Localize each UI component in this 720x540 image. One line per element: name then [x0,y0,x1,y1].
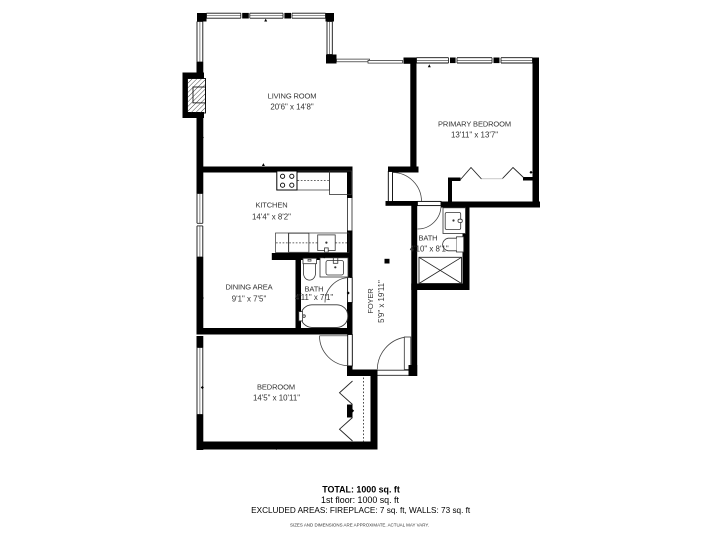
svg-text:20'6" x 14'8": 20'6" x 14'8" [270,102,313,111]
svg-text:9'1" x 7'5": 9'1" x 7'5" [232,294,267,303]
svg-text:14'4" x 8'2": 14'4" x 8'2" [252,212,291,221]
svg-text:EXCLUDED AREAS: FIREPLACE: 7 s: EXCLUDED AREAS: FIREPLACE: 7 sq. ft, WAL… [251,506,471,515]
svg-text:4'11" x 7'1": 4'11" x 7'1" [295,293,333,302]
svg-text:FOYER: FOYER [366,288,375,314]
svg-text:13'11" x 13'7": 13'11" x 13'7" [451,130,498,139]
svg-text:14'5" x 10'11": 14'5" x 10'11" [253,394,300,403]
svg-text:5'9" x 19'11": 5'9" x 19'11" [377,280,386,323]
svg-text:1st floor: 1000 sq. ft: 1st floor: 1000 sq. ft [321,495,399,505]
svg-text:BEDROOM: BEDROOM [257,382,295,391]
svg-text:KITCHEN: KITCHEN [255,200,287,209]
svg-text:SIZES AND DIMENSIONS ARE APPRO: SIZES AND DIMENSIONS ARE APPROXIMATE. AC… [290,523,429,528]
svg-text:TOTAL: 1000 sq. ft: TOTAL: 1000 sq. ft [322,484,400,494]
svg-text:LIVING ROOM: LIVING ROOM [268,91,317,100]
svg-text:PRIMARY BEDROOM: PRIMARY BEDROOM [438,119,511,128]
svg-text:4'10" x 8'1": 4'10" x 8'1" [410,245,449,254]
svg-text:DINING AREA: DINING AREA [225,282,272,291]
svg-text:BATH: BATH [419,234,438,243]
